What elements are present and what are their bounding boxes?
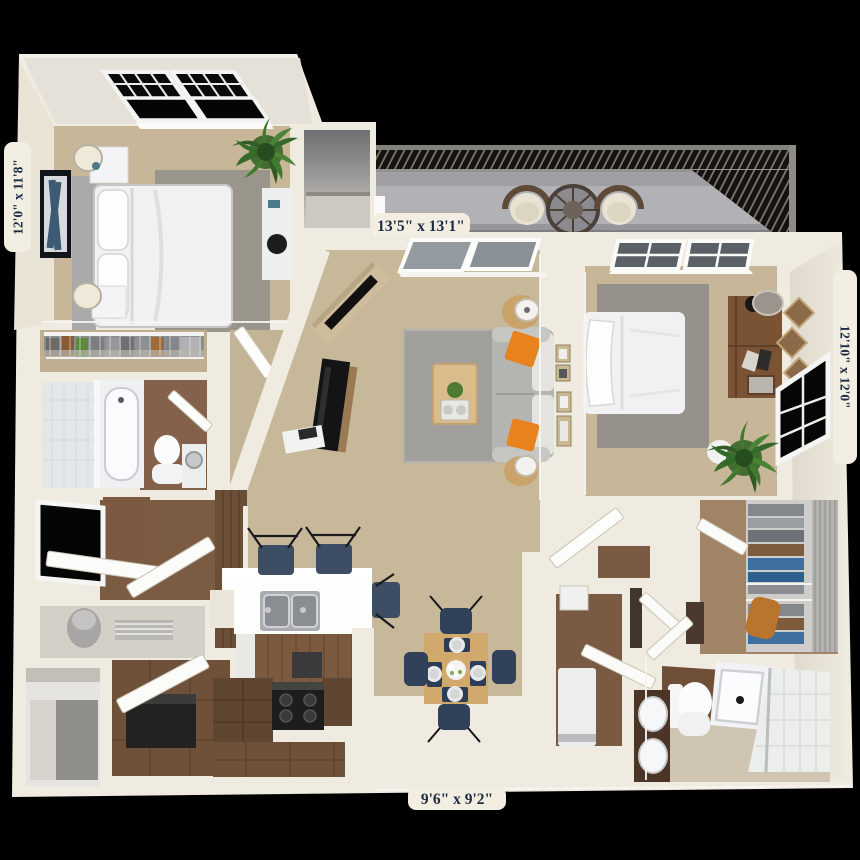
svg-text:9'6" x 9'2": 9'6" x 9'2" (421, 791, 493, 808)
svg-text:12'0" x 11'8": 12'0" x 11'8" (11, 159, 26, 235)
svg-text:12'10" x 12'0": 12'10" x 12'0" (838, 325, 853, 408)
svg-text:13'5" x 13'1": 13'5" x 13'1" (377, 218, 465, 235)
